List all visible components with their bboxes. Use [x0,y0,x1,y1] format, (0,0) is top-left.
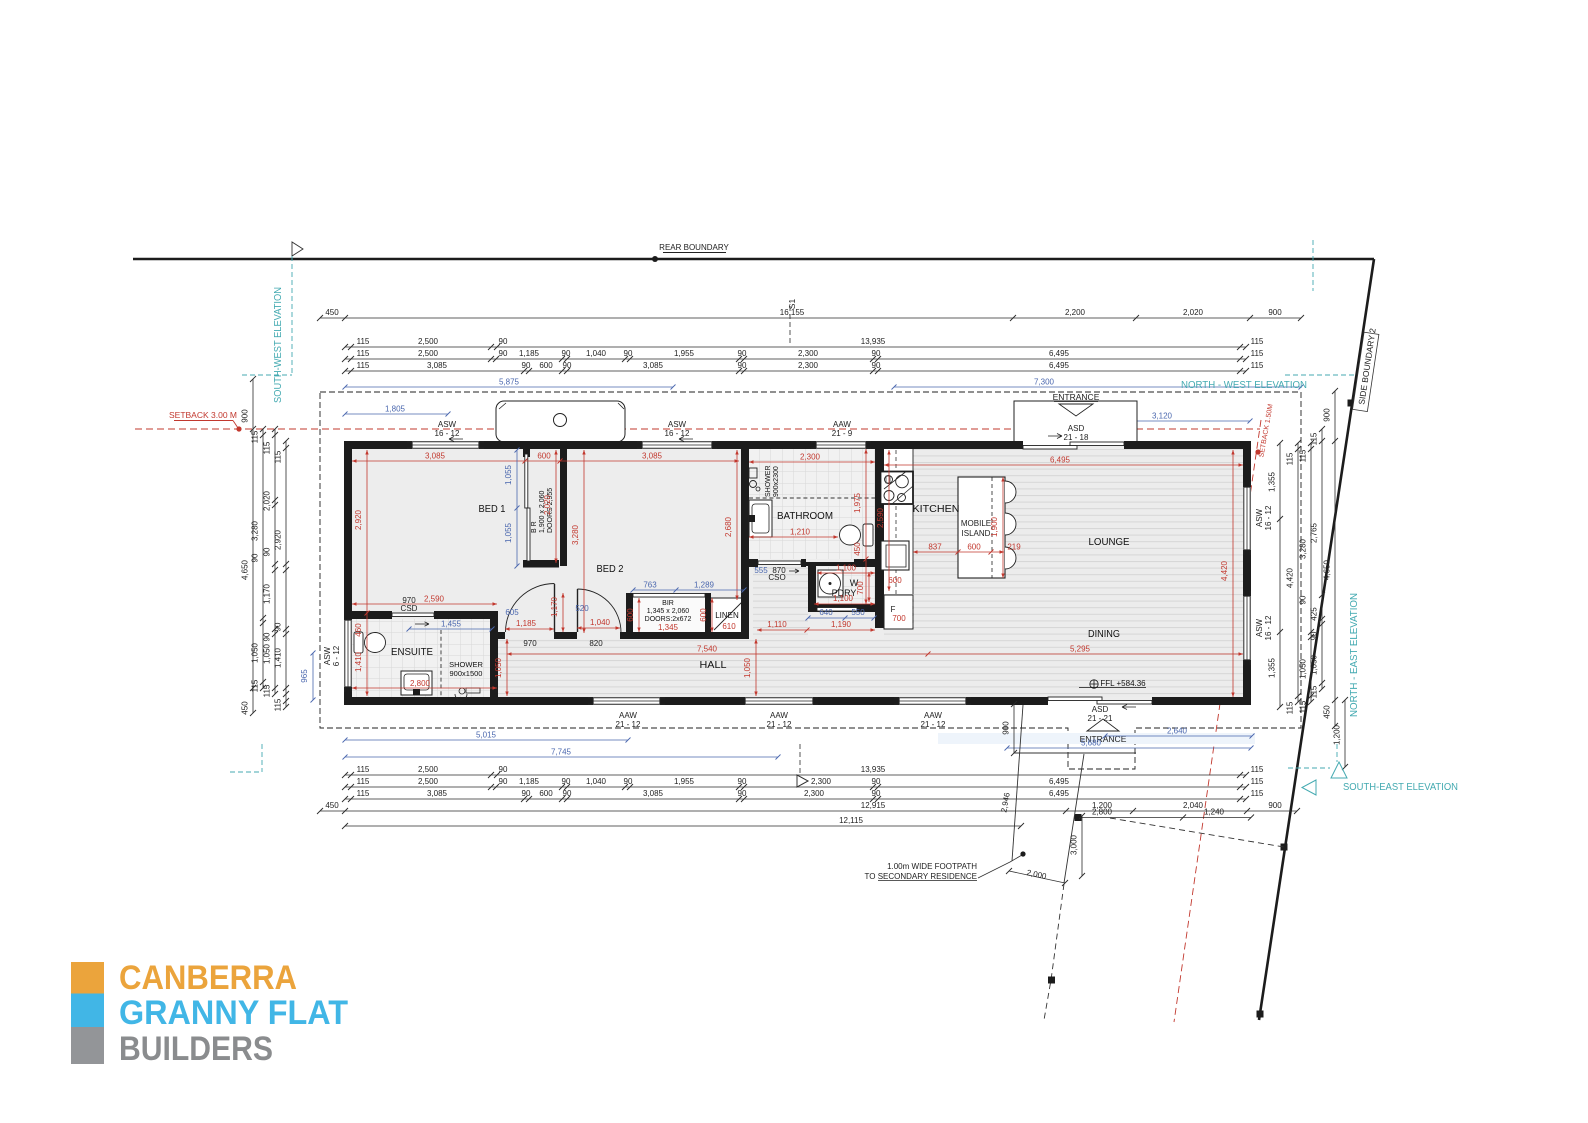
svg-text:900: 900 [241,409,250,423]
svg-text:ASW: ASW [668,420,687,429]
svg-text:450: 450 [853,542,862,556]
svg-text:600: 600 [537,452,551,461]
svg-text:13,935: 13,935 [861,337,886,346]
svg-text:LINEN: LINEN [715,611,739,620]
svg-text:5,680: 5,680 [1081,739,1102,748]
svg-text:GRANNY FLAT: GRANNY FLAT [119,994,348,1032]
svg-text:2,640: 2,640 [1167,727,1188,736]
svg-text:3,085: 3,085 [642,452,663,461]
svg-text:1,210: 1,210 [790,528,811,537]
svg-text:555: 555 [754,566,768,575]
svg-text:6,495: 6,495 [1049,777,1070,786]
svg-text:3,085: 3,085 [643,789,664,798]
svg-text:DOORS:2x672: DOORS:2x672 [645,616,692,623]
svg-text:1,955: 1,955 [674,349,695,358]
svg-text:115: 115 [251,679,260,692]
svg-text:90: 90 [624,777,633,786]
svg-text:1,410: 1,410 [354,651,363,672]
svg-text:6,495: 6,495 [1049,789,1070,798]
svg-text:7,540: 7,540 [697,645,718,654]
svg-text:ASW: ASW [323,646,332,665]
svg-text:90: 90 [563,789,572,798]
svg-text:1,955: 1,955 [674,777,695,786]
svg-text:115: 115 [263,684,272,697]
svg-text:AAW: AAW [619,711,637,720]
svg-text:AAW: AAW [833,420,851,429]
svg-text:115: 115 [1251,337,1264,346]
svg-text:1,200: 1,200 [1333,724,1342,745]
svg-text:KITCHEN: KITCHEN [913,503,960,515]
svg-text:450: 450 [1323,705,1332,719]
svg-text:2,040: 2,040 [1183,801,1204,810]
svg-text:600: 600 [626,608,635,622]
svg-text:CSO: CSO [768,573,785,582]
svg-text:90: 90 [738,361,747,370]
svg-text:605: 605 [505,608,519,617]
svg-text:BATHROOM: BATHROOM [777,510,833,522]
svg-text:90: 90 [872,349,881,358]
svg-text:90: 90 [1310,631,1319,640]
svg-text:763: 763 [643,581,657,590]
svg-text:115: 115 [1251,777,1264,786]
svg-text:3,280: 3,280 [571,524,580,545]
svg-text:21 - 18: 21 - 18 [1064,433,1089,442]
svg-text:610: 610 [722,622,736,631]
svg-text:2,500: 2,500 [418,349,439,358]
svg-text:115: 115 [357,349,370,358]
svg-text:7,745: 7,745 [551,748,572,757]
svg-text:AAW: AAW [924,711,942,720]
svg-text:115: 115 [1251,361,1264,370]
svg-text:6 - 12: 6 - 12 [332,645,341,666]
svg-text:965: 965 [300,669,309,683]
svg-text:1,170: 1,170 [263,583,272,604]
svg-text:21 - 9: 21 - 9 [832,429,853,438]
svg-text:21 - 21: 21 - 21 [1088,714,1113,723]
svg-text:2,500: 2,500 [418,337,439,346]
svg-text:115: 115 [357,789,370,798]
svg-text:600: 600 [967,543,981,552]
svg-text:1,185: 1,185 [519,777,540,786]
svg-text:1,345 x 2,060: 1,345 x 2,060 [647,608,690,615]
svg-text:1,345: 1,345 [658,623,679,632]
svg-text:90: 90 [499,777,508,786]
svg-text:FFL +584.36: FFL +584.36 [1100,679,1146,688]
svg-text:ASD: ASD [1092,705,1109,714]
svg-text:ASW: ASW [1255,618,1264,637]
svg-text:1,050: 1,050 [494,657,503,678]
svg-text:600: 600 [888,576,902,585]
svg-text:970: 970 [523,639,537,648]
svg-text:450: 450 [241,701,250,715]
svg-text:ASW: ASW [1255,508,1264,527]
svg-text:CANBERRA: CANBERRA [119,959,297,997]
svg-text:2,590: 2,590 [424,595,445,604]
svg-text:6,495: 6,495 [1049,349,1070,358]
svg-text:1,170: 1,170 [550,596,559,617]
svg-text:6,495: 6,495 [1050,456,1071,465]
svg-text:BIR: BIR [662,600,674,607]
svg-text:115: 115 [357,777,370,786]
svg-text:21 - 12: 21 - 12 [767,720,792,729]
svg-text:90: 90 [263,632,272,641]
svg-text:1,100: 1,100 [833,594,854,603]
svg-text:900: 900 [1323,408,1332,422]
svg-text:2,590: 2,590 [876,507,885,528]
svg-text:90: 90 [1299,595,1308,604]
svg-text:5,015: 5,015 [476,731,497,740]
svg-text:6,495: 6,495 [1049,361,1070,370]
svg-text:90: 90 [263,547,272,556]
svg-text:16 - 12: 16 - 12 [435,429,460,438]
svg-text:115: 115 [1286,701,1295,714]
svg-text:1,050: 1,050 [1310,654,1319,675]
svg-text:1,410: 1,410 [274,647,283,668]
svg-text:1,040: 1,040 [586,777,607,786]
svg-text:3,280: 3,280 [1299,538,1308,559]
svg-text:TO SECONDARY RESIDENCE: TO SECONDARY RESIDENCE [865,872,977,881]
svg-text:600: 600 [699,608,708,622]
svg-text:520: 520 [575,604,589,613]
svg-text:MOBILE: MOBILE [961,519,991,528]
svg-text:2,500: 2,500 [418,777,439,786]
svg-text:SHOWER: SHOWER [449,660,483,669]
svg-text:BED 2: BED 2 [597,563,624,575]
svg-text:115: 115 [1299,449,1308,462]
svg-text:1,190: 1,190 [831,620,852,629]
svg-text:REAR BOUNDARY: REAR BOUNDARY [659,243,729,252]
svg-text:115: 115 [357,361,370,370]
svg-text:115: 115 [274,450,283,463]
svg-text:900: 900 [1268,801,1282,810]
svg-text:550: 550 [851,608,865,617]
svg-text:16 - 12: 16 - 12 [1264,615,1273,640]
svg-text:ISLAND: ISLAND [962,529,991,538]
svg-text:5,295: 5,295 [1070,645,1091,654]
svg-text:90: 90 [274,622,283,631]
svg-text:16 - 12: 16 - 12 [1264,505,1273,530]
svg-text:1,040: 1,040 [586,349,607,358]
svg-text:115: 115 [1251,765,1264,774]
svg-text:SETBACK 3.00 M: SETBACK 3.00 M [169,410,237,420]
svg-text:600: 600 [539,361,553,370]
svg-text:SOUTH-WEST ELEVATION: SOUTH-WEST ELEVATION [273,287,284,403]
svg-text:NORTH - WEST ELEVATION: NORTH - WEST ELEVATION [1181,380,1307,391]
svg-text:3,085: 3,085 [643,361,664,370]
svg-text:115: 115 [274,698,283,711]
svg-text:2,920: 2,920 [354,509,363,530]
svg-text:90: 90 [872,789,881,798]
svg-text:1,900: 1,900 [990,516,999,537]
svg-text:1,289: 1,289 [694,581,715,590]
svg-text:2,020: 2,020 [263,490,272,511]
svg-text:1,975: 1,975 [853,492,862,513]
svg-text:3,120: 3,120 [1152,412,1173,421]
svg-text:90: 90 [872,361,881,370]
svg-text:2,800: 2,800 [1092,808,1113,817]
svg-text:SHOWER: SHOWER [765,466,772,498]
svg-text:900x1500: 900x1500 [450,669,483,678]
svg-text:90: 90 [562,777,571,786]
svg-text:900: 900 [1268,308,1282,317]
svg-text:B R: B R [531,521,538,533]
svg-text:700: 700 [856,581,865,595]
svg-text:1,185: 1,185 [519,349,540,358]
svg-text:1,355: 1,355 [1268,471,1277,492]
svg-text:115: 115 [1286,452,1295,465]
svg-text:2,020: 2,020 [1183,308,1204,317]
svg-text:90: 90 [522,789,531,798]
svg-text:BUILDERS: BUILDERS [119,1030,273,1068]
svg-text:115: 115 [1310,432,1319,445]
svg-text:ENSUITE: ENSUITE [391,646,433,658]
svg-text:2,300: 2,300 [798,349,819,358]
svg-text:1,185: 1,185 [516,619,537,628]
svg-text:13,935: 13,935 [861,765,886,774]
svg-text:425: 425 [1310,607,1319,621]
svg-text:900: 900 [1002,721,1011,735]
svg-text:CSD: CSD [401,604,418,613]
svg-text:115: 115 [251,430,260,443]
svg-text:1,805: 1,805 [385,405,406,414]
svg-text:HALL: HALL [700,659,727,671]
svg-text:NORTH - EAST ELEVATION: NORTH - EAST ELEVATION [1349,593,1360,717]
svg-text:1,100: 1,100 [836,564,857,573]
svg-text:4,420: 4,420 [1286,567,1295,588]
svg-text:LOUNGE: LOUNGE [1089,536,1130,548]
svg-text:4,420: 4,420 [1220,560,1229,581]
svg-text:820: 820 [589,639,603,648]
svg-text:2,500: 2,500 [418,765,439,774]
svg-text:F: F [891,605,896,614]
svg-text:21 - 12: 21 - 12 [921,720,946,729]
svg-text:450: 450 [325,308,339,317]
svg-text:450: 450 [325,801,339,810]
svg-text:837: 837 [928,543,942,552]
svg-text:600: 600 [539,789,553,798]
svg-text:90: 90 [251,553,260,562]
svg-text:90: 90 [499,765,508,774]
svg-text:1.00m WIDE FOOTPATH: 1.00m WIDE FOOTPATH [887,862,977,871]
svg-text:2,300: 2,300 [800,453,821,462]
svg-text:4,650: 4,650 [1323,559,1332,580]
svg-text:90: 90 [738,349,747,358]
svg-text:219: 219 [1007,543,1021,552]
svg-text:115: 115 [1310,685,1319,698]
svg-text:640: 640 [819,608,833,617]
svg-text:90: 90 [738,789,747,798]
svg-text:90: 90 [563,361,572,370]
svg-text:3,085: 3,085 [427,361,448,370]
svg-text:90: 90 [562,349,571,358]
svg-text:1,050: 1,050 [263,643,272,664]
svg-text:1,050: 1,050 [743,657,752,678]
svg-text:1,055: 1,055 [504,464,513,485]
svg-text:90: 90 [499,337,508,346]
svg-text:3,000: 3,000 [1070,834,1079,855]
svg-text:1,040: 1,040 [590,618,611,627]
svg-text:3,085: 3,085 [425,452,446,461]
svg-text:7,300: 7,300 [1034,378,1055,387]
svg-text:2,300: 2,300 [811,777,832,786]
svg-text:1,050: 1,050 [251,642,260,663]
svg-text:2,920: 2,920 [274,529,283,550]
svg-text:2,680: 2,680 [724,516,733,537]
svg-text:16,155: 16,155 [780,308,805,317]
svg-text:460: 460 [354,623,363,637]
svg-text:ENTRANCE: ENTRANCE [1053,392,1100,402]
svg-text:DINING: DINING [1088,628,1120,640]
svg-text:1,055: 1,055 [504,522,513,543]
svg-text:3,280: 3,280 [251,520,260,541]
svg-text:90: 90 [624,349,633,358]
svg-text:90: 90 [499,349,508,358]
svg-text:12,115: 12,115 [839,816,863,825]
svg-text:900x2300: 900x2300 [773,466,780,497]
svg-text:90: 90 [738,777,747,786]
svg-text:1,240: 1,240 [1204,808,1225,817]
svg-text:5,875: 5,875 [499,378,520,387]
svg-text:4,650: 4,650 [241,559,250,580]
svg-text:3,085: 3,085 [427,789,448,798]
svg-text:90: 90 [522,361,531,370]
svg-text:16 - 12: 16 - 12 [665,429,690,438]
svg-text:AAW: AAW [770,711,788,720]
svg-text:2,200: 2,200 [1065,308,1086,317]
svg-text:115: 115 [1251,789,1264,798]
svg-text:115: 115 [357,337,370,346]
svg-text:BED 1: BED 1 [479,503,506,515]
svg-text:SOUTH-EAST ELEVATION: SOUTH-EAST ELEVATION [1343,782,1458,793]
svg-text:2,300: 2,300 [798,361,819,370]
svg-text:1,355: 1,355 [1268,657,1277,678]
svg-text:2,300: 2,300 [804,789,825,798]
svg-text:ASW: ASW [438,420,457,429]
svg-text:2,765: 2,765 [1310,522,1319,543]
svg-text:115: 115 [357,765,370,774]
svg-text:1,455: 1,455 [441,620,462,629]
svg-text:115: 115 [1299,700,1308,713]
svg-text:90: 90 [872,777,881,786]
svg-text:12,915: 12,915 [861,801,886,810]
svg-text:2,020: 2,020 [543,494,552,515]
svg-text:115: 115 [263,441,272,454]
svg-text:ASD: ASD [1068,424,1085,433]
svg-text:115: 115 [1251,349,1264,358]
svg-text:21 - 12: 21 - 12 [616,720,641,729]
svg-text:1,110: 1,110 [767,620,787,629]
svg-text:2,800: 2,800 [410,679,431,688]
svg-text:1,050: 1,050 [1299,658,1308,679]
svg-text:700: 700 [892,614,906,623]
